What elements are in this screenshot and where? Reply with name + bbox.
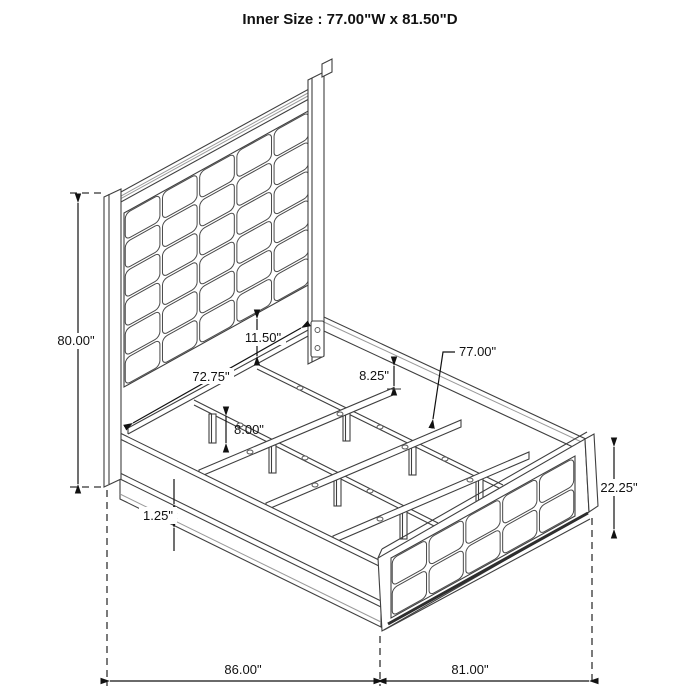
rail-bracket <box>311 321 324 357</box>
dimension-label: 80.00" <box>57 333 95 348</box>
dimension-overall-width: 81.00" <box>383 662 589 681</box>
dimension-label: 86.00" <box>224 662 262 677</box>
leg <box>269 445 276 473</box>
dimension-rail-drop: 8.25" <box>359 366 401 389</box>
bed-dimension-diagram: 80.00" 11.50" 72.75" 8.25" 77.00" <box>0 0 700 700</box>
dimension-footboard-height: 22.25" <box>598 447 640 529</box>
dimension-label: 22.25" <box>600 480 638 495</box>
dimension-headboard-gap: 11.50" <box>240 319 286 356</box>
dimension-label: 8.00" <box>234 422 264 437</box>
leg <box>343 413 350 441</box>
leg <box>409 447 416 475</box>
dimension-label: 8.25" <box>359 368 389 383</box>
leg <box>209 414 216 443</box>
dimension-overall-height: 80.00" <box>52 203 100 484</box>
dimension-label: 1.25" <box>143 508 173 523</box>
headboard-right-post <box>308 59 332 364</box>
headboard-post-tab <box>322 59 332 77</box>
diagram-title: Inner Size : 77.00"W x 81.50"D <box>242 11 457 28</box>
diagram-canvas: 80.00" 11.50" 72.75" 8.25" 77.00" <box>0 0 700 700</box>
dimension-label: 72.75" <box>192 369 230 384</box>
headboard-left-post <box>104 189 121 487</box>
leg <box>334 478 341 506</box>
dimension-label: 77.00" <box>459 344 497 359</box>
dimension-leg-height: 8.00" <box>226 416 264 443</box>
dimension-label: 81.00" <box>451 662 489 677</box>
dimension-overall-depth: 86.00" <box>110 662 377 681</box>
near-side-rail <box>120 433 381 627</box>
far-side-rail <box>311 311 588 454</box>
bed-frame <box>120 311 588 627</box>
